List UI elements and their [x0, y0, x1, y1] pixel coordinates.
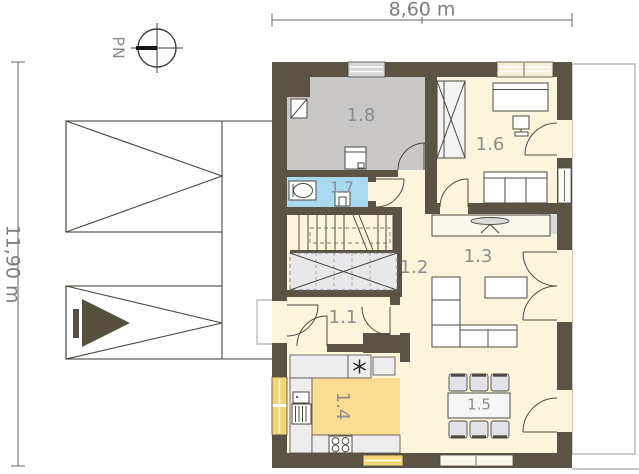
terrace: [572, 64, 639, 469]
room-label-1-5: 1.5: [467, 398, 491, 413]
entrance-arrow-icon: [73, 299, 130, 347]
room-label-1-3: 1.3: [464, 248, 493, 266]
room-label-1-7: 1.7: [330, 181, 354, 196]
entrance-step: [257, 300, 272, 344]
kitchen-counter-bottom: [312, 435, 400, 453]
washbasin: [289, 181, 316, 200]
stair-void: [290, 253, 397, 290]
stove: [329, 436, 352, 453]
north-compass-icon: [131, 23, 183, 73]
kitchen-sink: [292, 392, 311, 424]
coffee-table: [485, 277, 527, 298]
window-bottom-dining: [440, 455, 513, 466]
room-label-1-2: 1.2: [400, 259, 429, 277]
window-top-1-8: [348, 62, 385, 77]
dimension-width-label: 8,60 m: [389, 1, 456, 20]
window-right-1-6: [558, 168, 571, 203]
chimney-flue-icon: [291, 99, 307, 118]
room-1-4-floor: [312, 378, 400, 435]
desk-with-monitor: [513, 116, 529, 136]
compass-label: PN: [110, 36, 126, 60]
console-table-with-lamp: [432, 215, 550, 236]
window-bottom-kitchen: [363, 455, 403, 466]
dimension-height-label: 11,90 m: [3, 225, 22, 304]
kitchen-cabinet: [373, 357, 395, 375]
window-left-kitchen: [272, 377, 287, 435]
floor-plan: 8,60 m 11,90 m PN 1.1 1.2 1.3 1.4 1.5 1.…: [0, 0, 639, 474]
floor-plan-drawing: [0, 0, 639, 474]
sofa-1-6: [484, 172, 547, 203]
room-label-1-8: 1.8: [347, 107, 376, 125]
wardrobe: [437, 81, 465, 158]
carport-outline: [66, 121, 272, 359]
window-top-1-6: [497, 62, 553, 77]
fridge: [348, 355, 371, 378]
washing-machine: [345, 147, 366, 169]
bed: [493, 83, 548, 111]
room-label-1-1: 1.1: [329, 309, 358, 327]
room-label-1-4: 1.4: [333, 392, 351, 421]
kitchen-counter-top: [290, 355, 348, 378]
room-label-1-6: 1.6: [476, 136, 505, 154]
